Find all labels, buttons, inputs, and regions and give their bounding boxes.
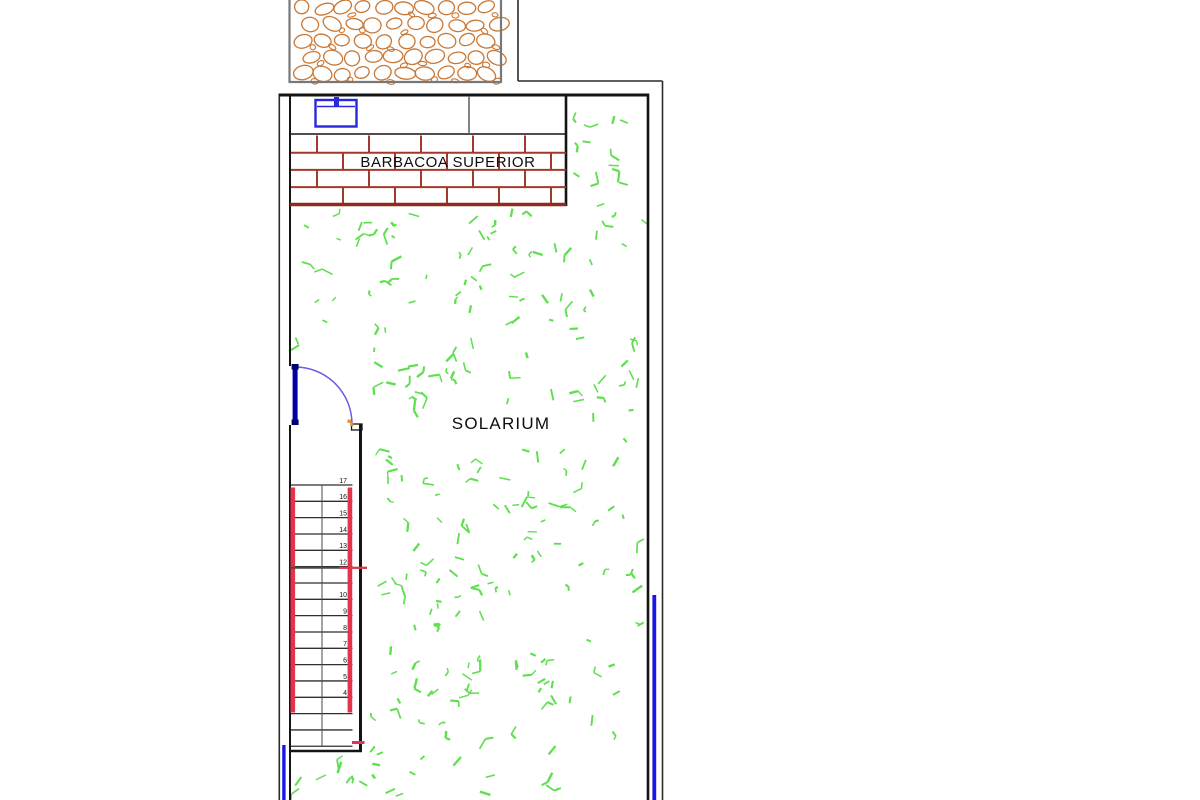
stair-step-number: 16 xyxy=(339,494,347,501)
stair-step-number: 8 xyxy=(343,625,347,632)
stair-step-number: 4 xyxy=(343,690,347,697)
floor-plan-canvas: 17161514131210987654 BARBACOA SUPERIOR S… xyxy=(0,0,1200,800)
stair-step-number: 7 xyxy=(343,641,347,648)
solarium-label: SOLARIUM xyxy=(420,414,582,434)
stair-step-number: 5 xyxy=(343,674,347,681)
stair-step-number: 13 xyxy=(339,543,347,550)
stair-step-number: 9 xyxy=(343,608,347,615)
stair-step-number: 17 xyxy=(339,478,347,485)
stair-step-number: 15 xyxy=(339,510,347,517)
cobblestone-paving xyxy=(289,0,511,85)
stair-step-number: 14 xyxy=(339,527,347,534)
staircase: 17161514131210987654 xyxy=(290,424,367,752)
door-swing xyxy=(292,364,354,426)
barbacoa-superior-label: BARBACOA SUPERIOR xyxy=(298,154,598,171)
floor-plan-drawing: 17161514131210987654 xyxy=(0,0,1200,800)
stair-step-number: 12 xyxy=(339,559,347,566)
stair-step-number: 6 xyxy=(343,657,347,664)
sink-symbol xyxy=(316,97,357,127)
stair-step-number: 10 xyxy=(339,592,347,599)
